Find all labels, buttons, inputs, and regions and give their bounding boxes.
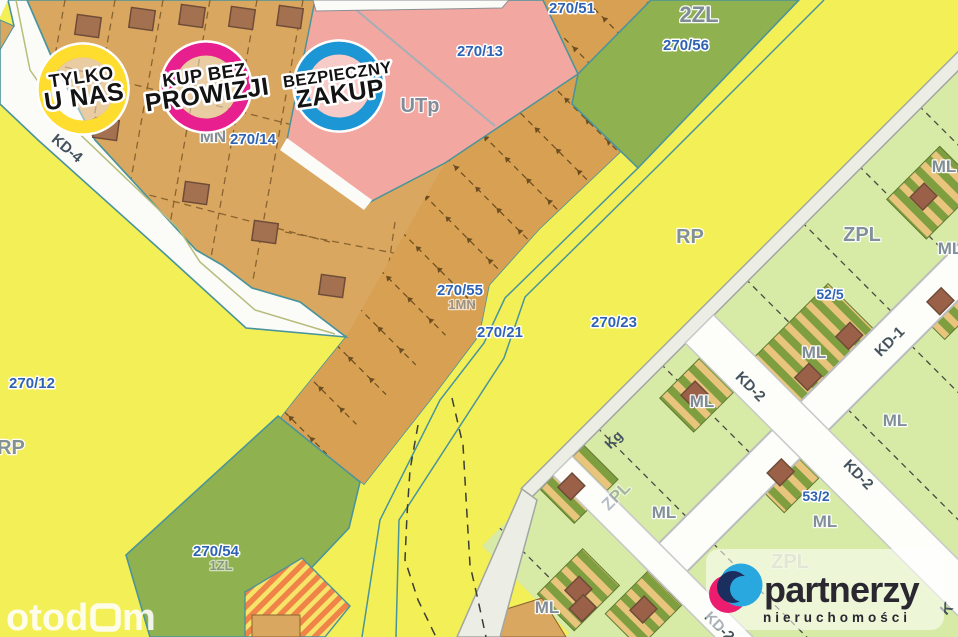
svg-text:ML: ML xyxy=(813,512,838,531)
svg-text:270/23: 270/23 xyxy=(591,314,637,331)
svg-text:partnerzy: partnerzy xyxy=(764,569,920,610)
svg-text:2ZL: 2ZL xyxy=(679,2,718,27)
svg-text:270/12: 270/12 xyxy=(9,375,55,392)
svg-text:m: m xyxy=(122,597,156,637)
svg-text:1MN: 1MN xyxy=(448,297,475,312)
svg-text:ML: ML xyxy=(802,343,827,362)
svg-text:53/2: 53/2 xyxy=(802,488,829,504)
svg-text:1ZL: 1ZL xyxy=(209,558,232,573)
svg-text:ZPL: ZPL xyxy=(843,224,881,246)
svg-text:ML: ML xyxy=(938,239,958,258)
svg-text:ML: ML xyxy=(932,157,957,176)
svg-text:270/51: 270/51 xyxy=(549,0,595,17)
svg-text:270/21: 270/21 xyxy=(477,324,523,341)
svg-text:RP: RP xyxy=(676,226,704,248)
svg-text:270/14: 270/14 xyxy=(230,131,277,148)
svg-text:ML: ML xyxy=(883,411,908,430)
svg-text:52/5: 52/5 xyxy=(816,286,843,302)
svg-text:UTp: UTp xyxy=(401,95,440,117)
svg-text:otod: otod xyxy=(6,597,88,637)
svg-text:270/56: 270/56 xyxy=(663,37,709,54)
svg-text:ML: ML xyxy=(652,503,677,522)
svg-text:ML: ML xyxy=(535,598,560,617)
svg-text:270/13: 270/13 xyxy=(457,43,503,60)
svg-text:ML: ML xyxy=(690,392,715,411)
svg-text:RP: RP xyxy=(0,437,25,459)
svg-text:nieruchomości: nieruchomości xyxy=(763,610,911,625)
